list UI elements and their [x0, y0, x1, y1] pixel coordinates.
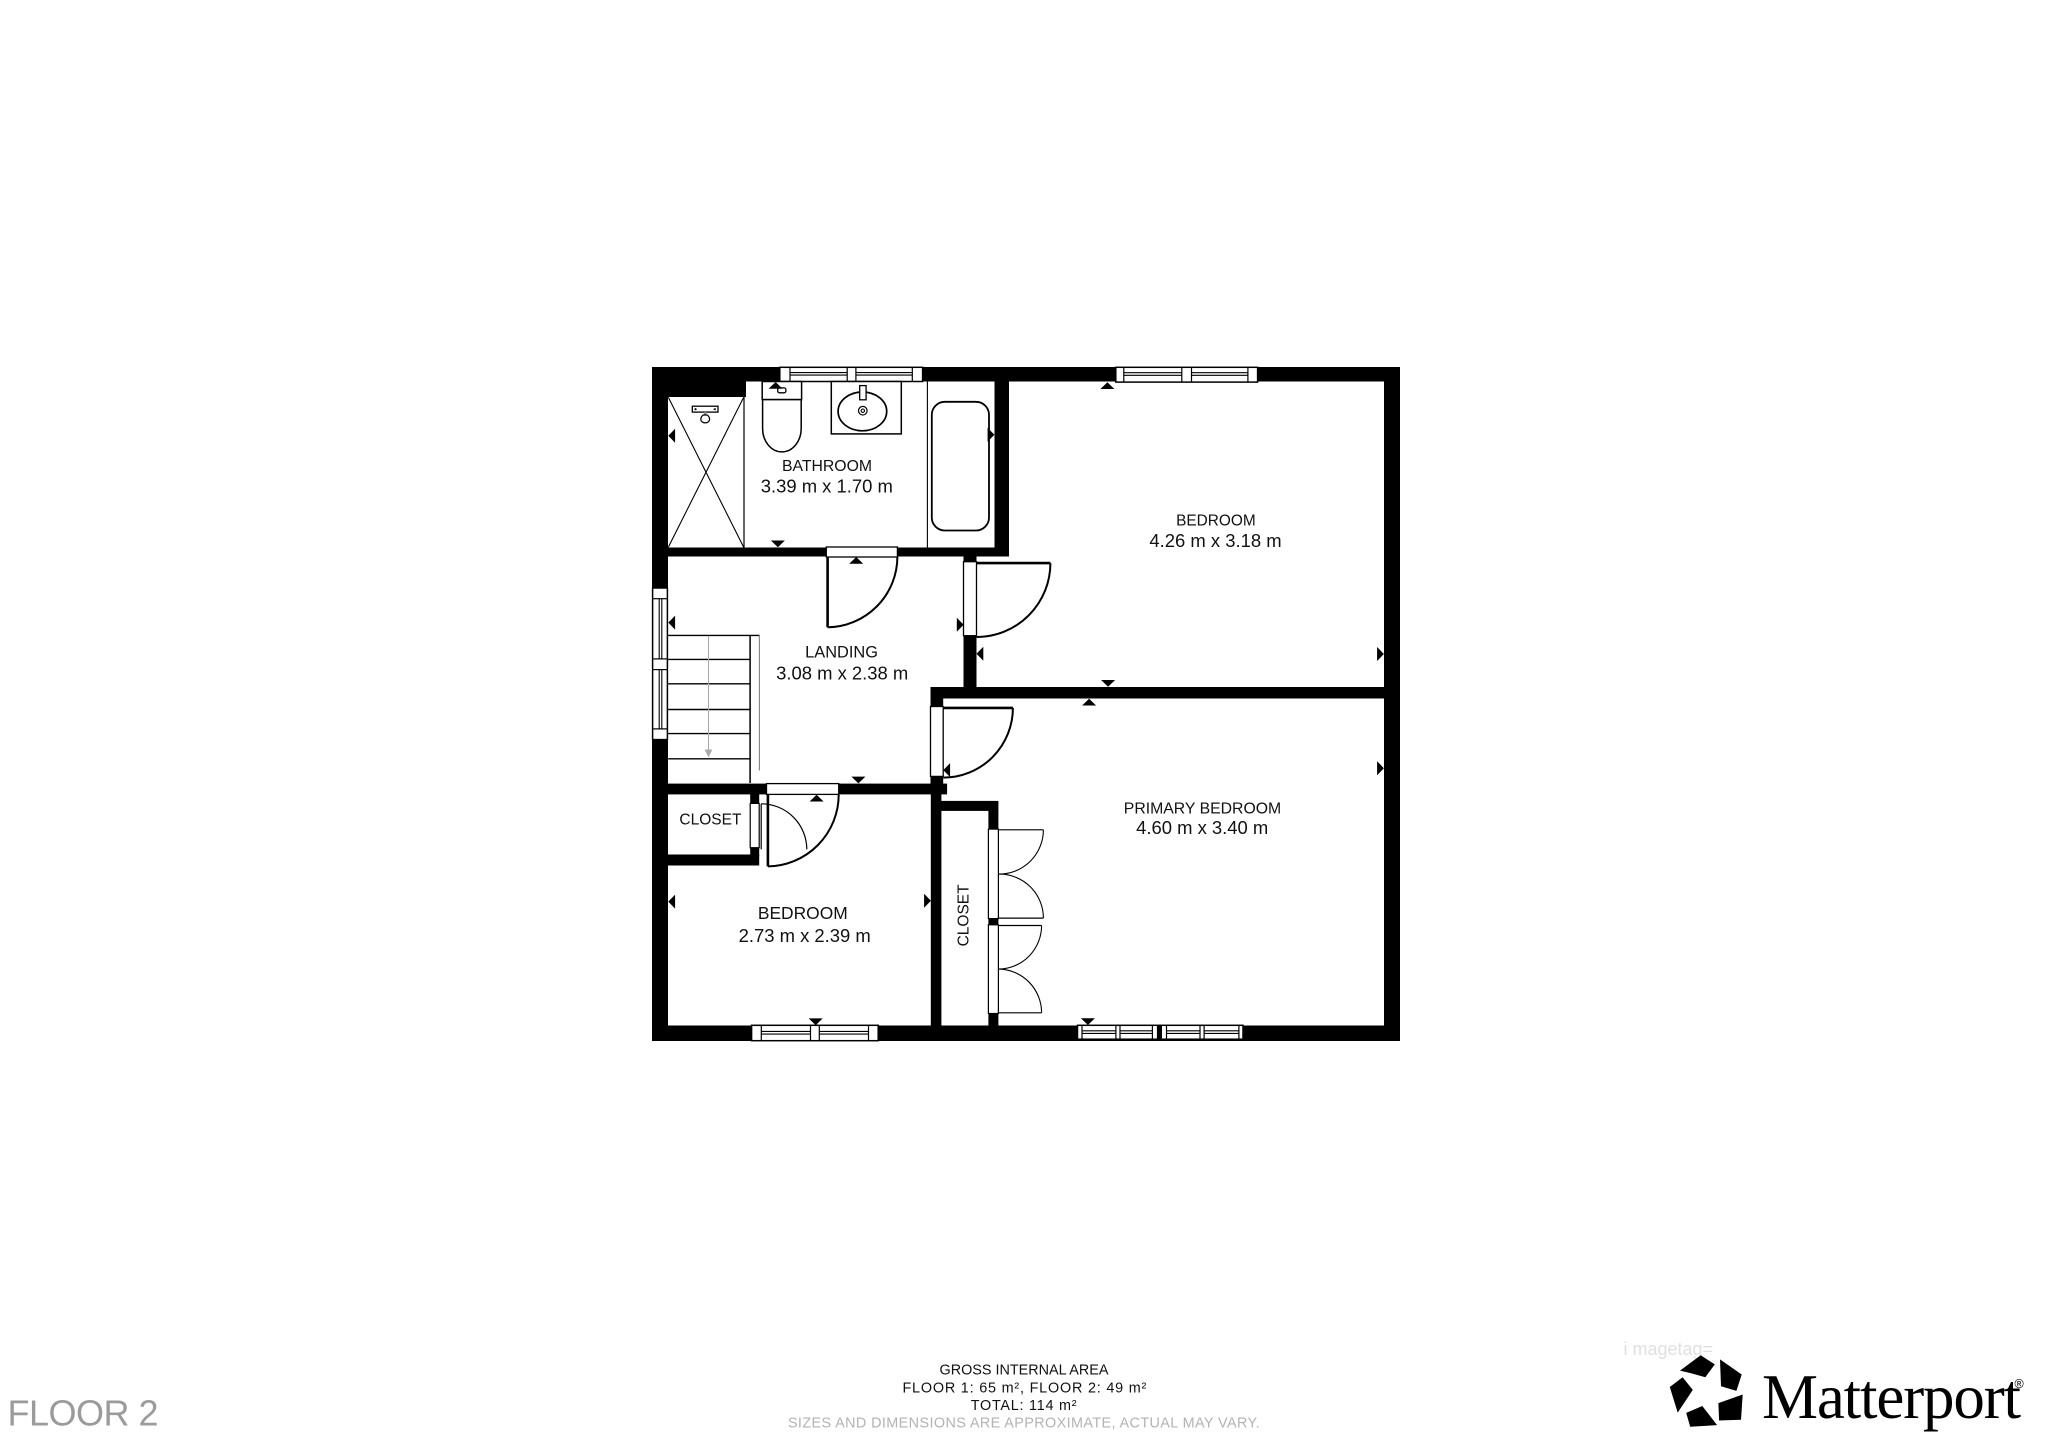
svg-text:®: ® [2015, 1377, 2025, 1391]
svg-text:4.60 m x 3.40 m: 4.60 m x 3.40 m [1136, 817, 1268, 838]
svg-text:CLOSET: CLOSET [955, 884, 972, 947]
svg-text:FLOOR 1: 65 m², FLOOR 2: 49 m²: FLOOR 1: 65 m², FLOOR 2: 49 m² [902, 1381, 1147, 1397]
svg-text:SIZES AND DIMENSIONS ARE APPRO: SIZES AND DIMENSIONS ARE APPROXIMATE, AC… [788, 1416, 1260, 1432]
svg-text:CLOSET: CLOSET [679, 812, 742, 829]
svg-text:2.73 m x 2.39 m: 2.73 m x 2.39 m [739, 925, 871, 946]
svg-text:3.39 m x 1.70 m: 3.39 m x 1.70 m [761, 475, 893, 496]
svg-text:BEDROOM: BEDROOM [1176, 513, 1256, 530]
svg-text:BEDROOM: BEDROOM [758, 903, 848, 923]
svg-text:4.26 m x 3.18 m: 4.26 m x 3.18 m [1149, 530, 1281, 551]
svg-text:BATHROOM: BATHROOM [782, 458, 872, 475]
svg-text:FLOOR 2: FLOOR 2 [8, 1393, 159, 1434]
svg-text:TOTAL: 114 m²: TOTAL: 114 m² [971, 1398, 1078, 1414]
svg-text:GROSS INTERNAL AREA: GROSS INTERNAL AREA [940, 1363, 1109, 1379]
svg-text:3.08 m x 2.38 m: 3.08 m x 2.38 m [776, 663, 908, 684]
svg-text:Matterport: Matterport [1762, 1362, 2022, 1432]
svg-text:PRIMARY BEDROOM: PRIMARY BEDROOM [1124, 801, 1281, 818]
svg-text:LANDING: LANDING [805, 644, 878, 662]
